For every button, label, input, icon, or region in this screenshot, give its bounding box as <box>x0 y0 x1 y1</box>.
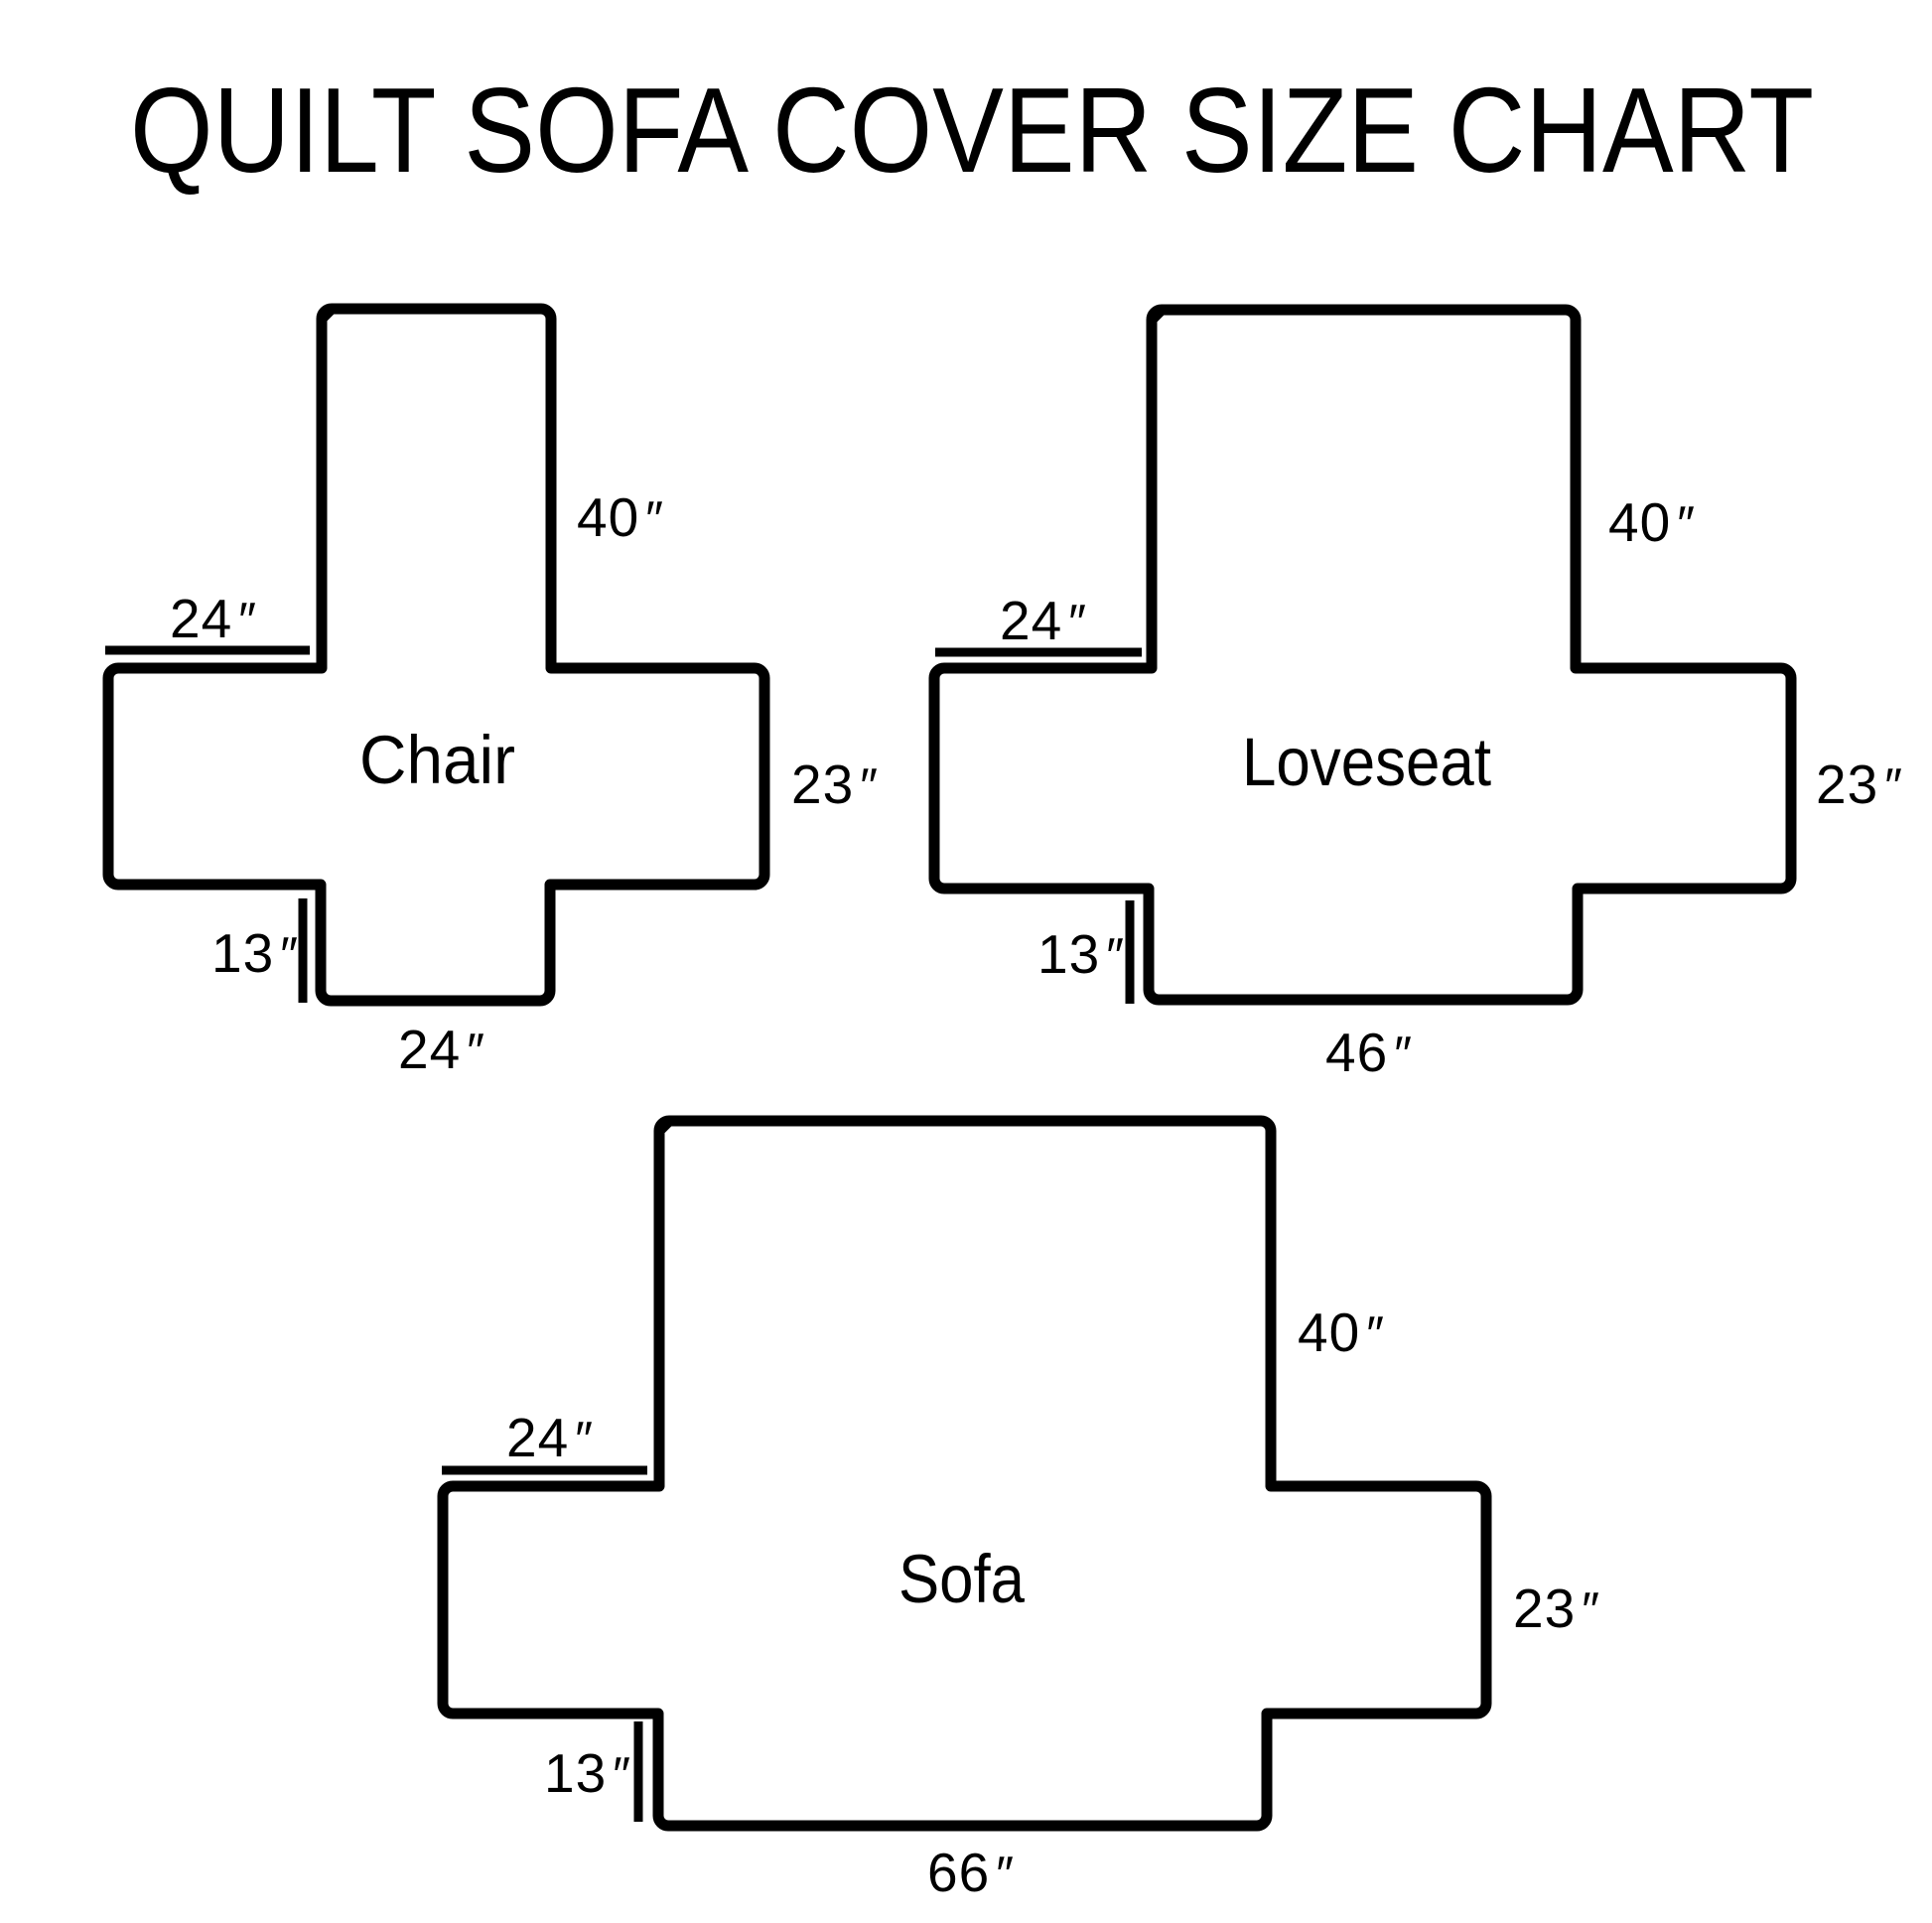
svg-text:23″: 23″ <box>791 754 879 815</box>
svg-text:23″: 23″ <box>1513 1578 1600 1639</box>
svg-text:13″: 13″ <box>1037 923 1125 985</box>
svg-text:24″: 24″ <box>506 1407 594 1468</box>
svg-text:Sofa: Sofa <box>898 1541 1026 1617</box>
svg-text:24″: 24″ <box>170 588 257 649</box>
svg-text:QUILT SOFA COVER SIZE CHART: QUILT SOFA COVER SIZE CHART <box>130 63 1814 198</box>
svg-text:Chair: Chair <box>359 722 515 798</box>
svg-text:46″: 46″ <box>1325 1022 1413 1083</box>
svg-text:13″: 13″ <box>211 922 299 984</box>
svg-text:40″: 40″ <box>1608 491 1696 553</box>
svg-text:23″: 23″ <box>1816 754 1903 815</box>
svg-text:40″: 40″ <box>577 486 664 548</box>
svg-text:66″: 66″ <box>927 1842 1015 1903</box>
svg-text:40″: 40″ <box>1298 1302 1385 1363</box>
svg-text:13″: 13″ <box>544 1742 631 1804</box>
svg-text:24″: 24″ <box>398 1019 485 1080</box>
svg-text:24″: 24″ <box>1000 590 1087 651</box>
svg-text:Loveseat: Loveseat <box>1242 724 1491 800</box>
